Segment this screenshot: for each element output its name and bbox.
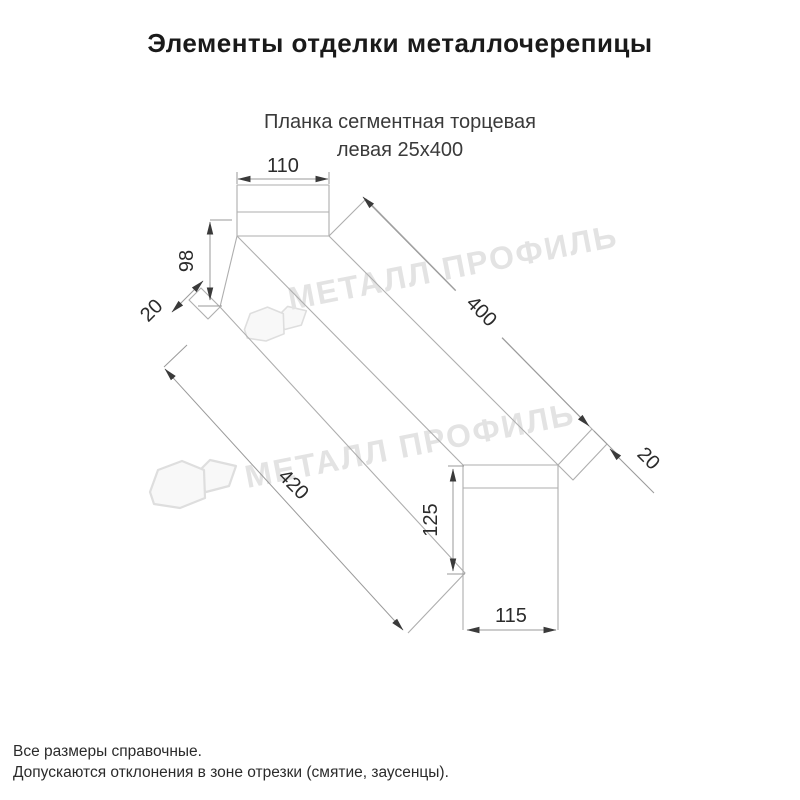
dim-label-far-hem: 20 xyxy=(633,443,664,474)
footnotes: Все размеры справочные. Допускаются откл… xyxy=(13,741,449,784)
dim-label-near-hem: 20 xyxy=(136,295,167,326)
footnote-line2: Допускаются отклонения в зоне отрезки (с… xyxy=(13,762,449,783)
dim-label-segment-width: 115 xyxy=(495,605,527,627)
dim-label-segment-height: 125 xyxy=(420,503,442,536)
dim-label-end-height: 98 xyxy=(176,250,198,272)
watermark-logo-icon xyxy=(150,460,236,508)
catalog-page: Элементы отделки металлочерепицы Планка … xyxy=(0,0,800,800)
dim-label-top-width: 110 xyxy=(267,155,299,177)
technical-drawing: МЕТАЛЛ ПРОФИЛЬ МЕТАЛЛ ПРОФИЛЬ xyxy=(0,0,800,800)
footnote-line1: Все размеры справочные. xyxy=(13,741,449,762)
watermark-text-1: МЕТАЛЛ ПРОФИЛЬ xyxy=(285,218,621,317)
